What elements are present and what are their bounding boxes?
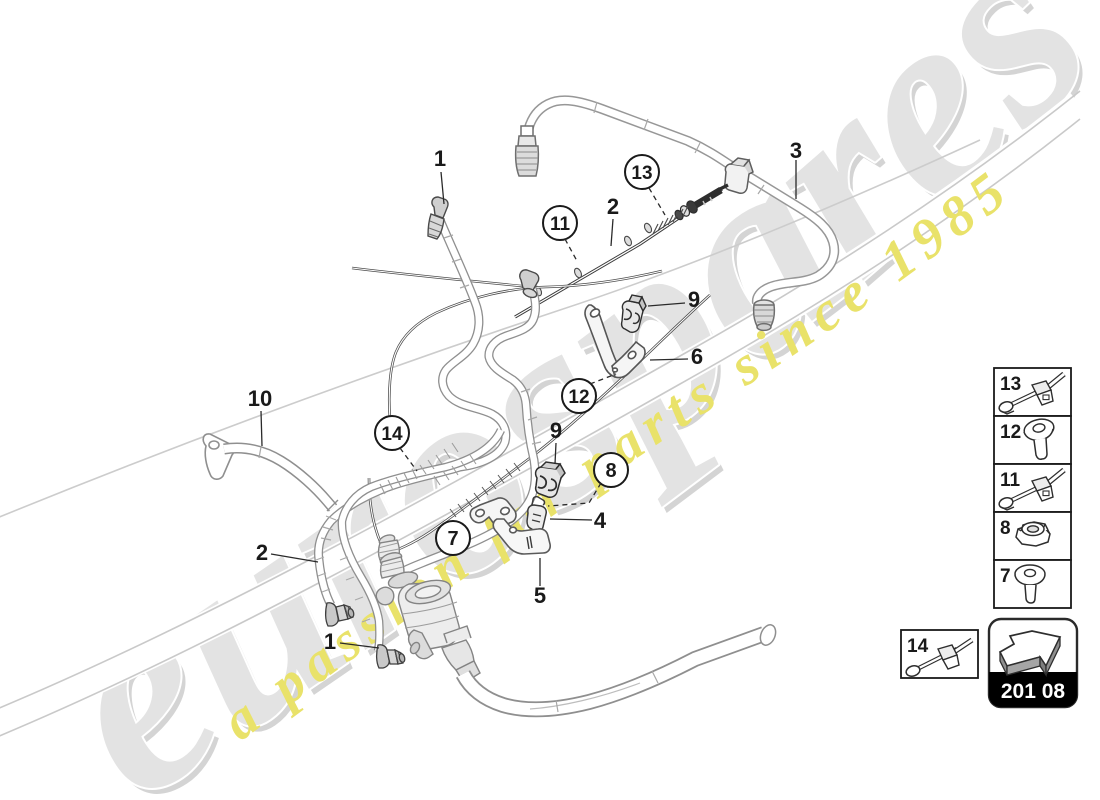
svg-text:14: 14: [381, 424, 403, 445]
svg-text:6: 6: [691, 344, 703, 369]
svg-text:7: 7: [447, 528, 458, 550]
svg-text:1: 1: [434, 146, 446, 171]
svg-text:10: 10: [248, 386, 272, 411]
svg-text:9: 9: [550, 418, 562, 443]
svg-text:8: 8: [605, 460, 616, 482]
svg-text:2: 2: [256, 540, 268, 565]
svg-text:13: 13: [631, 163, 652, 184]
svg-text:9: 9: [688, 287, 700, 312]
svg-text:1: 1: [324, 629, 336, 654]
svg-text:8: 8: [1000, 518, 1011, 539]
svg-text:7: 7: [1000, 566, 1011, 587]
svg-text:14: 14: [907, 636, 929, 657]
svg-text:12: 12: [568, 387, 589, 408]
svg-text:11: 11: [1000, 470, 1021, 491]
svg-text:13: 13: [1000, 374, 1021, 395]
svg-text:5: 5: [534, 583, 546, 608]
svg-text:201 08: 201 08: [1001, 680, 1066, 703]
svg-text:12: 12: [1000, 422, 1021, 443]
svg-text:2: 2: [607, 194, 619, 219]
svg-text:4: 4: [594, 508, 607, 533]
svg-text:3: 3: [790, 138, 802, 163]
svg-text:11: 11: [550, 214, 571, 235]
